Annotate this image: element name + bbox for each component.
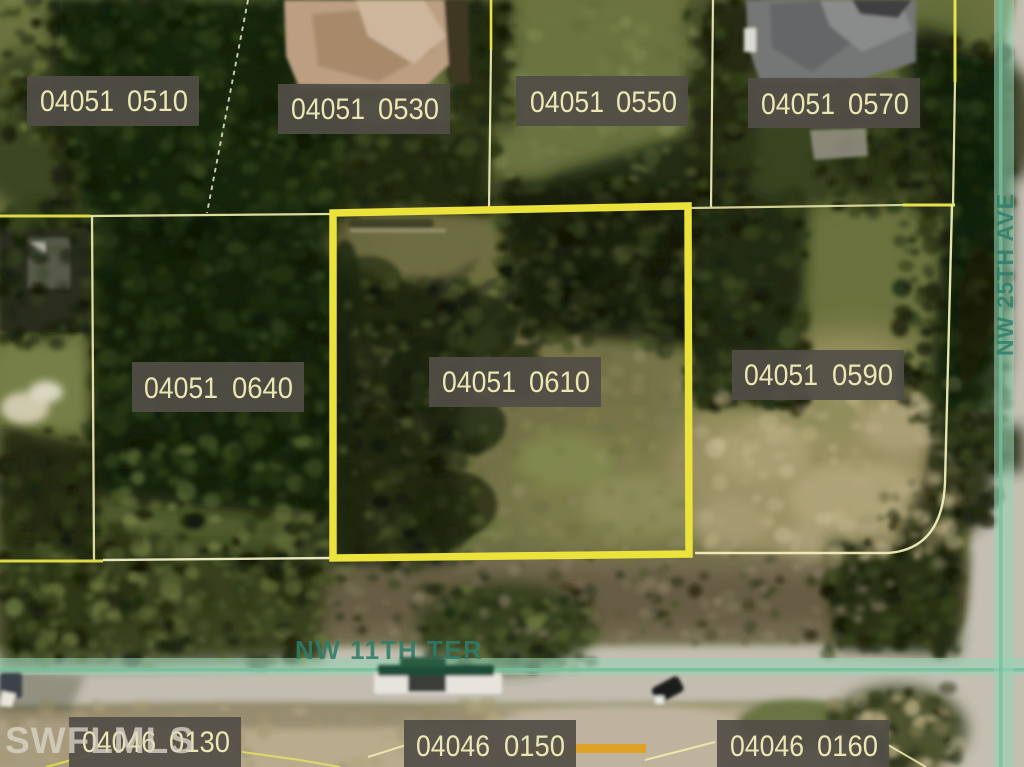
svg-text:NW 25TH AVE: NW 25TH AVE — [992, 193, 1018, 356]
svg-text:0150: 0150 — [504, 730, 565, 763]
svg-text:0610: 0610 — [529, 366, 590, 399]
svg-text:0550: 0550 — [616, 86, 677, 119]
svg-text:04051: 04051 — [40, 85, 114, 118]
svg-text:04051: 04051 — [744, 359, 818, 392]
svg-text:0530: 0530 — [378, 93, 439, 126]
svg-text:0640: 0640 — [232, 372, 293, 405]
svg-text:04051: 04051 — [761, 88, 835, 121]
svg-text:SWFLMLS: SWFLMLS — [5, 720, 195, 761]
svg-text:0160: 0160 — [817, 730, 878, 763]
svg-text:04046: 04046 — [416, 730, 490, 763]
svg-text:04046: 04046 — [730, 730, 804, 763]
svg-text:04051: 04051 — [144, 372, 218, 405]
svg-text:04051: 04051 — [530, 86, 604, 119]
svg-text:04051: 04051 — [442, 366, 516, 399]
svg-text:04051: 04051 — [291, 93, 365, 126]
svg-text:0510: 0510 — [127, 85, 188, 118]
svg-text:0570: 0570 — [848, 88, 909, 121]
svg-text:0590: 0590 — [832, 359, 893, 392]
svg-text:NW 11TH TER: NW 11TH TER — [295, 635, 483, 665]
